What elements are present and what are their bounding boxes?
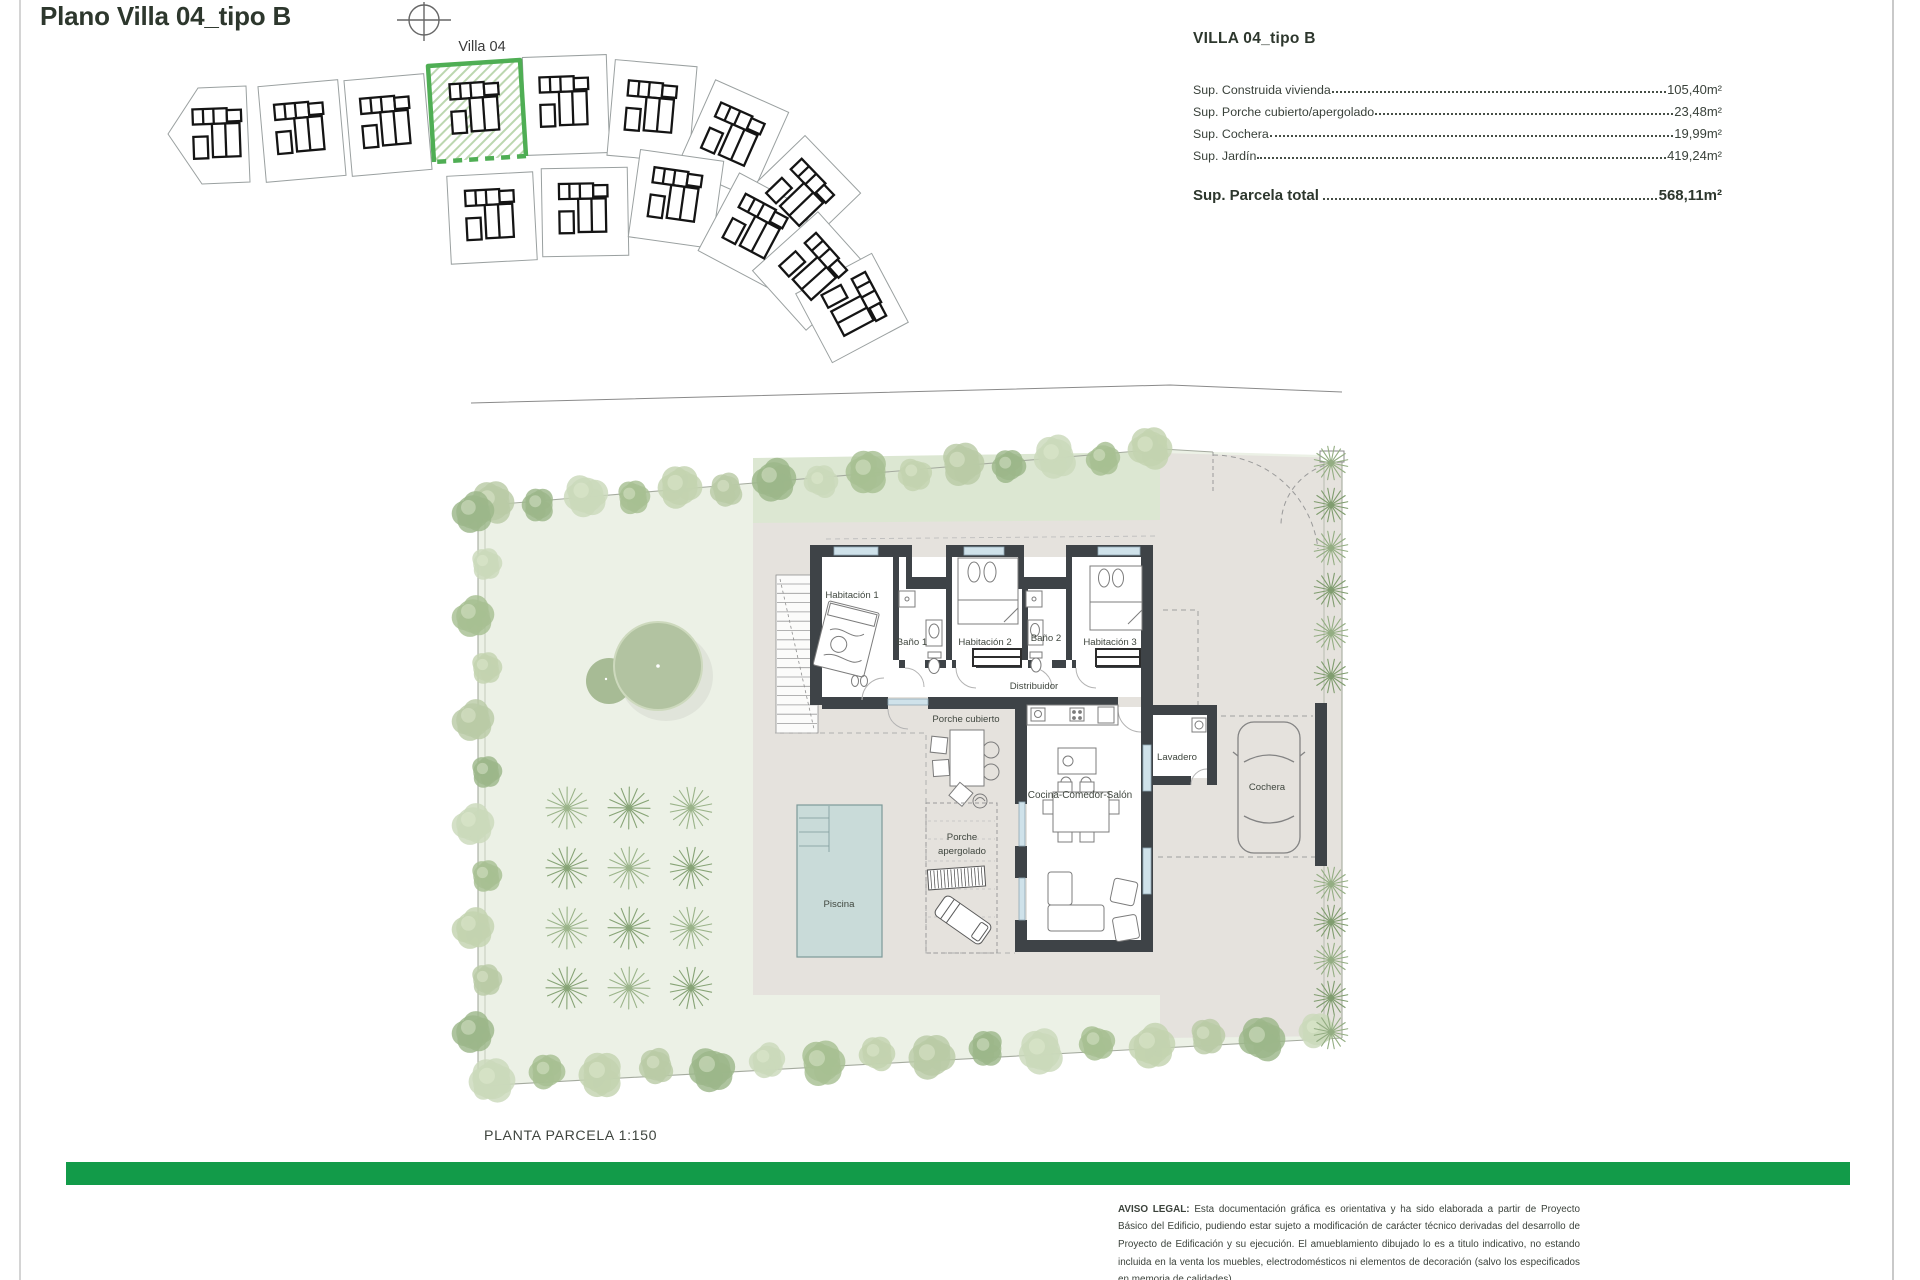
parcel-plan: Habitación 1 Baño 1 Habitación 2 Baño 2 …	[452, 385, 1348, 1103]
info-row-value: 19,99m²	[1674, 126, 1722, 141]
info-row-label: Sup. Jardín	[1193, 149, 1256, 163]
legal-notice: AVISO LEGAL: Esta documentación gráfica …	[1118, 1201, 1580, 1280]
room-label-cochera: Cochera	[1249, 782, 1286, 793]
room-label-lavadero: Lavadero	[1157, 752, 1197, 763]
info-panel: VILLA 04_tipo B Sup. Construida vivienda…	[1193, 30, 1722, 204]
info-row-label: Sup. Porche cubierto/apergolado	[1193, 105, 1374, 119]
room-label-porche-cubierto: Porche cubierto	[932, 714, 999, 725]
compass-icon	[397, 2, 451, 41]
info-total-label: Sup. Parcela total	[1193, 187, 1319, 204]
room-label-habitacion3: Habitación 3	[1083, 637, 1136, 648]
info-row-value: 23,48m²	[1674, 104, 1722, 119]
site-plan: Villa 04	[168, 2, 908, 363]
villa-04-label: Villa 04	[458, 39, 505, 55]
legal-notice-title: AVISO LEGAL:	[1118, 1204, 1190, 1215]
info-row-label: Sup. Cochera	[1193, 127, 1269, 141]
room-label-habitacion2: Habitación 2	[958, 637, 1011, 648]
info-heading: VILLA 04_tipo B	[1193, 30, 1722, 48]
green-accent-bar	[66, 1162, 1850, 1185]
info-row-label: Sup. Construida vivienda	[1193, 83, 1331, 97]
room-label-porche-apergolado-1: Porche	[947, 832, 977, 843]
room-label-bano2: Baño 2	[1031, 633, 1061, 644]
room-label-distribuidor: Distribuidor	[1010, 681, 1059, 692]
room-label-piscina: Piscina	[824, 899, 856, 910]
dotted-leader	[1270, 135, 1674, 137]
info-row-value: 419,24m²	[1667, 148, 1722, 163]
info-total-row: Sup. Parcela total 568,11m²	[1193, 178, 1722, 204]
info-row: Sup. Jardín 419,24m²	[1193, 141, 1722, 163]
dotted-leader	[1257, 157, 1666, 159]
room-label-cocina: Cocina-Comedor-Salón	[1028, 790, 1133, 801]
dotted-leader	[1332, 91, 1666, 93]
room-label-bano1: Baño 1	[897, 637, 927, 648]
info-row: Sup. Porche cubierto/apergolado 23,48m²	[1193, 97, 1722, 119]
info-row: Sup. Cochera 19,99m²	[1193, 119, 1722, 141]
dotted-leader	[1323, 198, 1657, 200]
room-label-habitacion1: Habitación 1	[825, 590, 878, 601]
info-row-value: 105,40m²	[1667, 82, 1722, 97]
info-total-value: 568,11m²	[1659, 187, 1722, 204]
page-title: Plano Villa 04_tipo B	[40, 1, 291, 32]
room-label-porche-apergolado-2: apergolado	[938, 846, 986, 857]
plan-sheet: Villa 04	[0, 0, 1920, 1280]
scale-label: PLANTA PARCELA 1:150	[484, 1128, 657, 1144]
street-boundary-line	[471, 385, 1342, 403]
info-row: Sup. Construida vivienda 105,40m²	[1193, 75, 1722, 97]
pool	[797, 805, 882, 957]
dotted-leader	[1375, 113, 1673, 115]
legal-notice-text: Esta documentación gráfica es orientativ…	[1118, 1204, 1580, 1280]
